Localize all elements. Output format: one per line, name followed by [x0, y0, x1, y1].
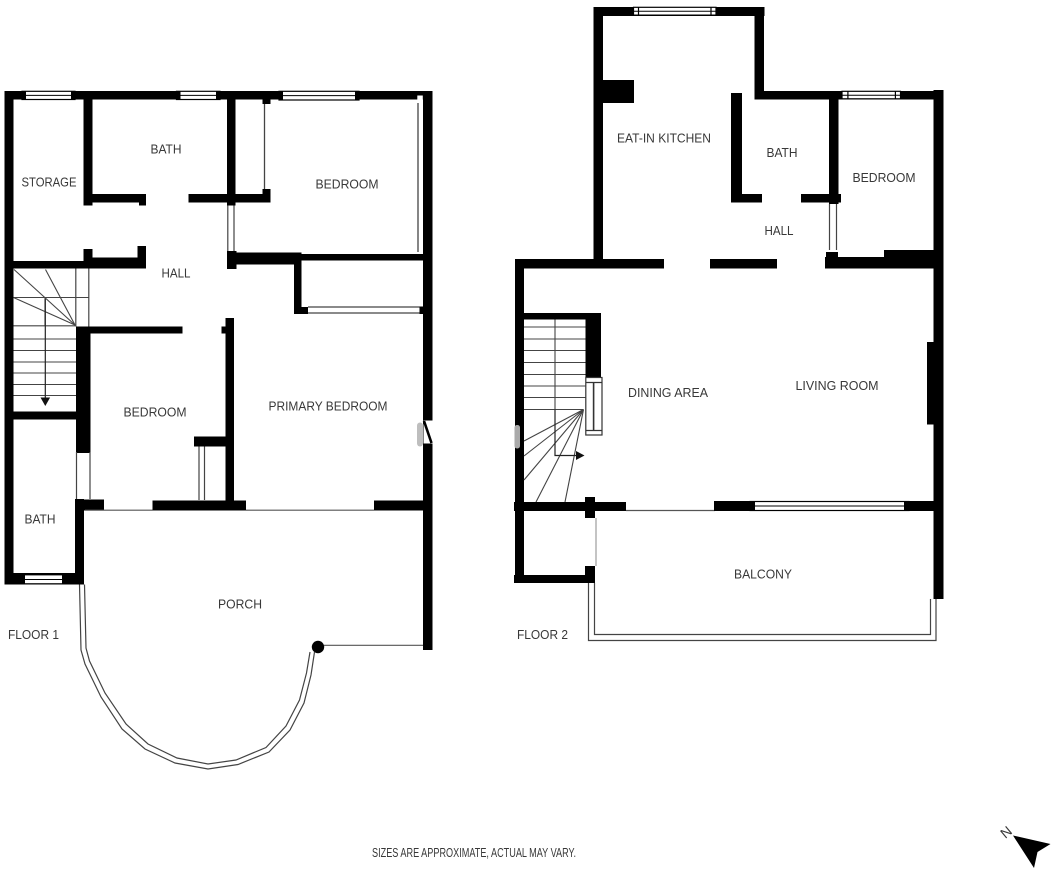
- svg-text:BATH: BATH: [25, 512, 56, 527]
- svg-text:BATH: BATH: [767, 145, 798, 160]
- svg-text:PRIMARY BEDROOM: PRIMARY BEDROOM: [269, 399, 388, 414]
- svg-text:LIVING ROOM: LIVING ROOM: [796, 378, 879, 393]
- svg-text:DINING AREA: DINING AREA: [628, 385, 708, 400]
- svg-text:HALL: HALL: [162, 266, 191, 281]
- svg-text:FLOOR 1: FLOOR 1: [8, 627, 59, 642]
- svg-text:BEDROOM: BEDROOM: [124, 405, 187, 420]
- svg-text:EAT-IN KITCHEN: EAT-IN KITCHEN: [617, 131, 711, 146]
- svg-text:BEDROOM: BEDROOM: [853, 170, 916, 185]
- svg-text:BALCONY: BALCONY: [734, 567, 792, 582]
- svg-text:BATH: BATH: [151, 142, 182, 157]
- svg-text:PORCH: PORCH: [218, 597, 262, 612]
- svg-text:FLOOR 2: FLOOR 2: [517, 627, 568, 642]
- svg-text:BEDROOM: BEDROOM: [316, 177, 379, 192]
- svg-text:HALL: HALL: [765, 223, 794, 238]
- svg-text:SIZES ARE APPROXIMATE, ACTUAL: SIZES ARE APPROXIMATE, ACTUAL MAY VARY.: [372, 846, 576, 860]
- svg-text:STORAGE: STORAGE: [22, 175, 77, 190]
